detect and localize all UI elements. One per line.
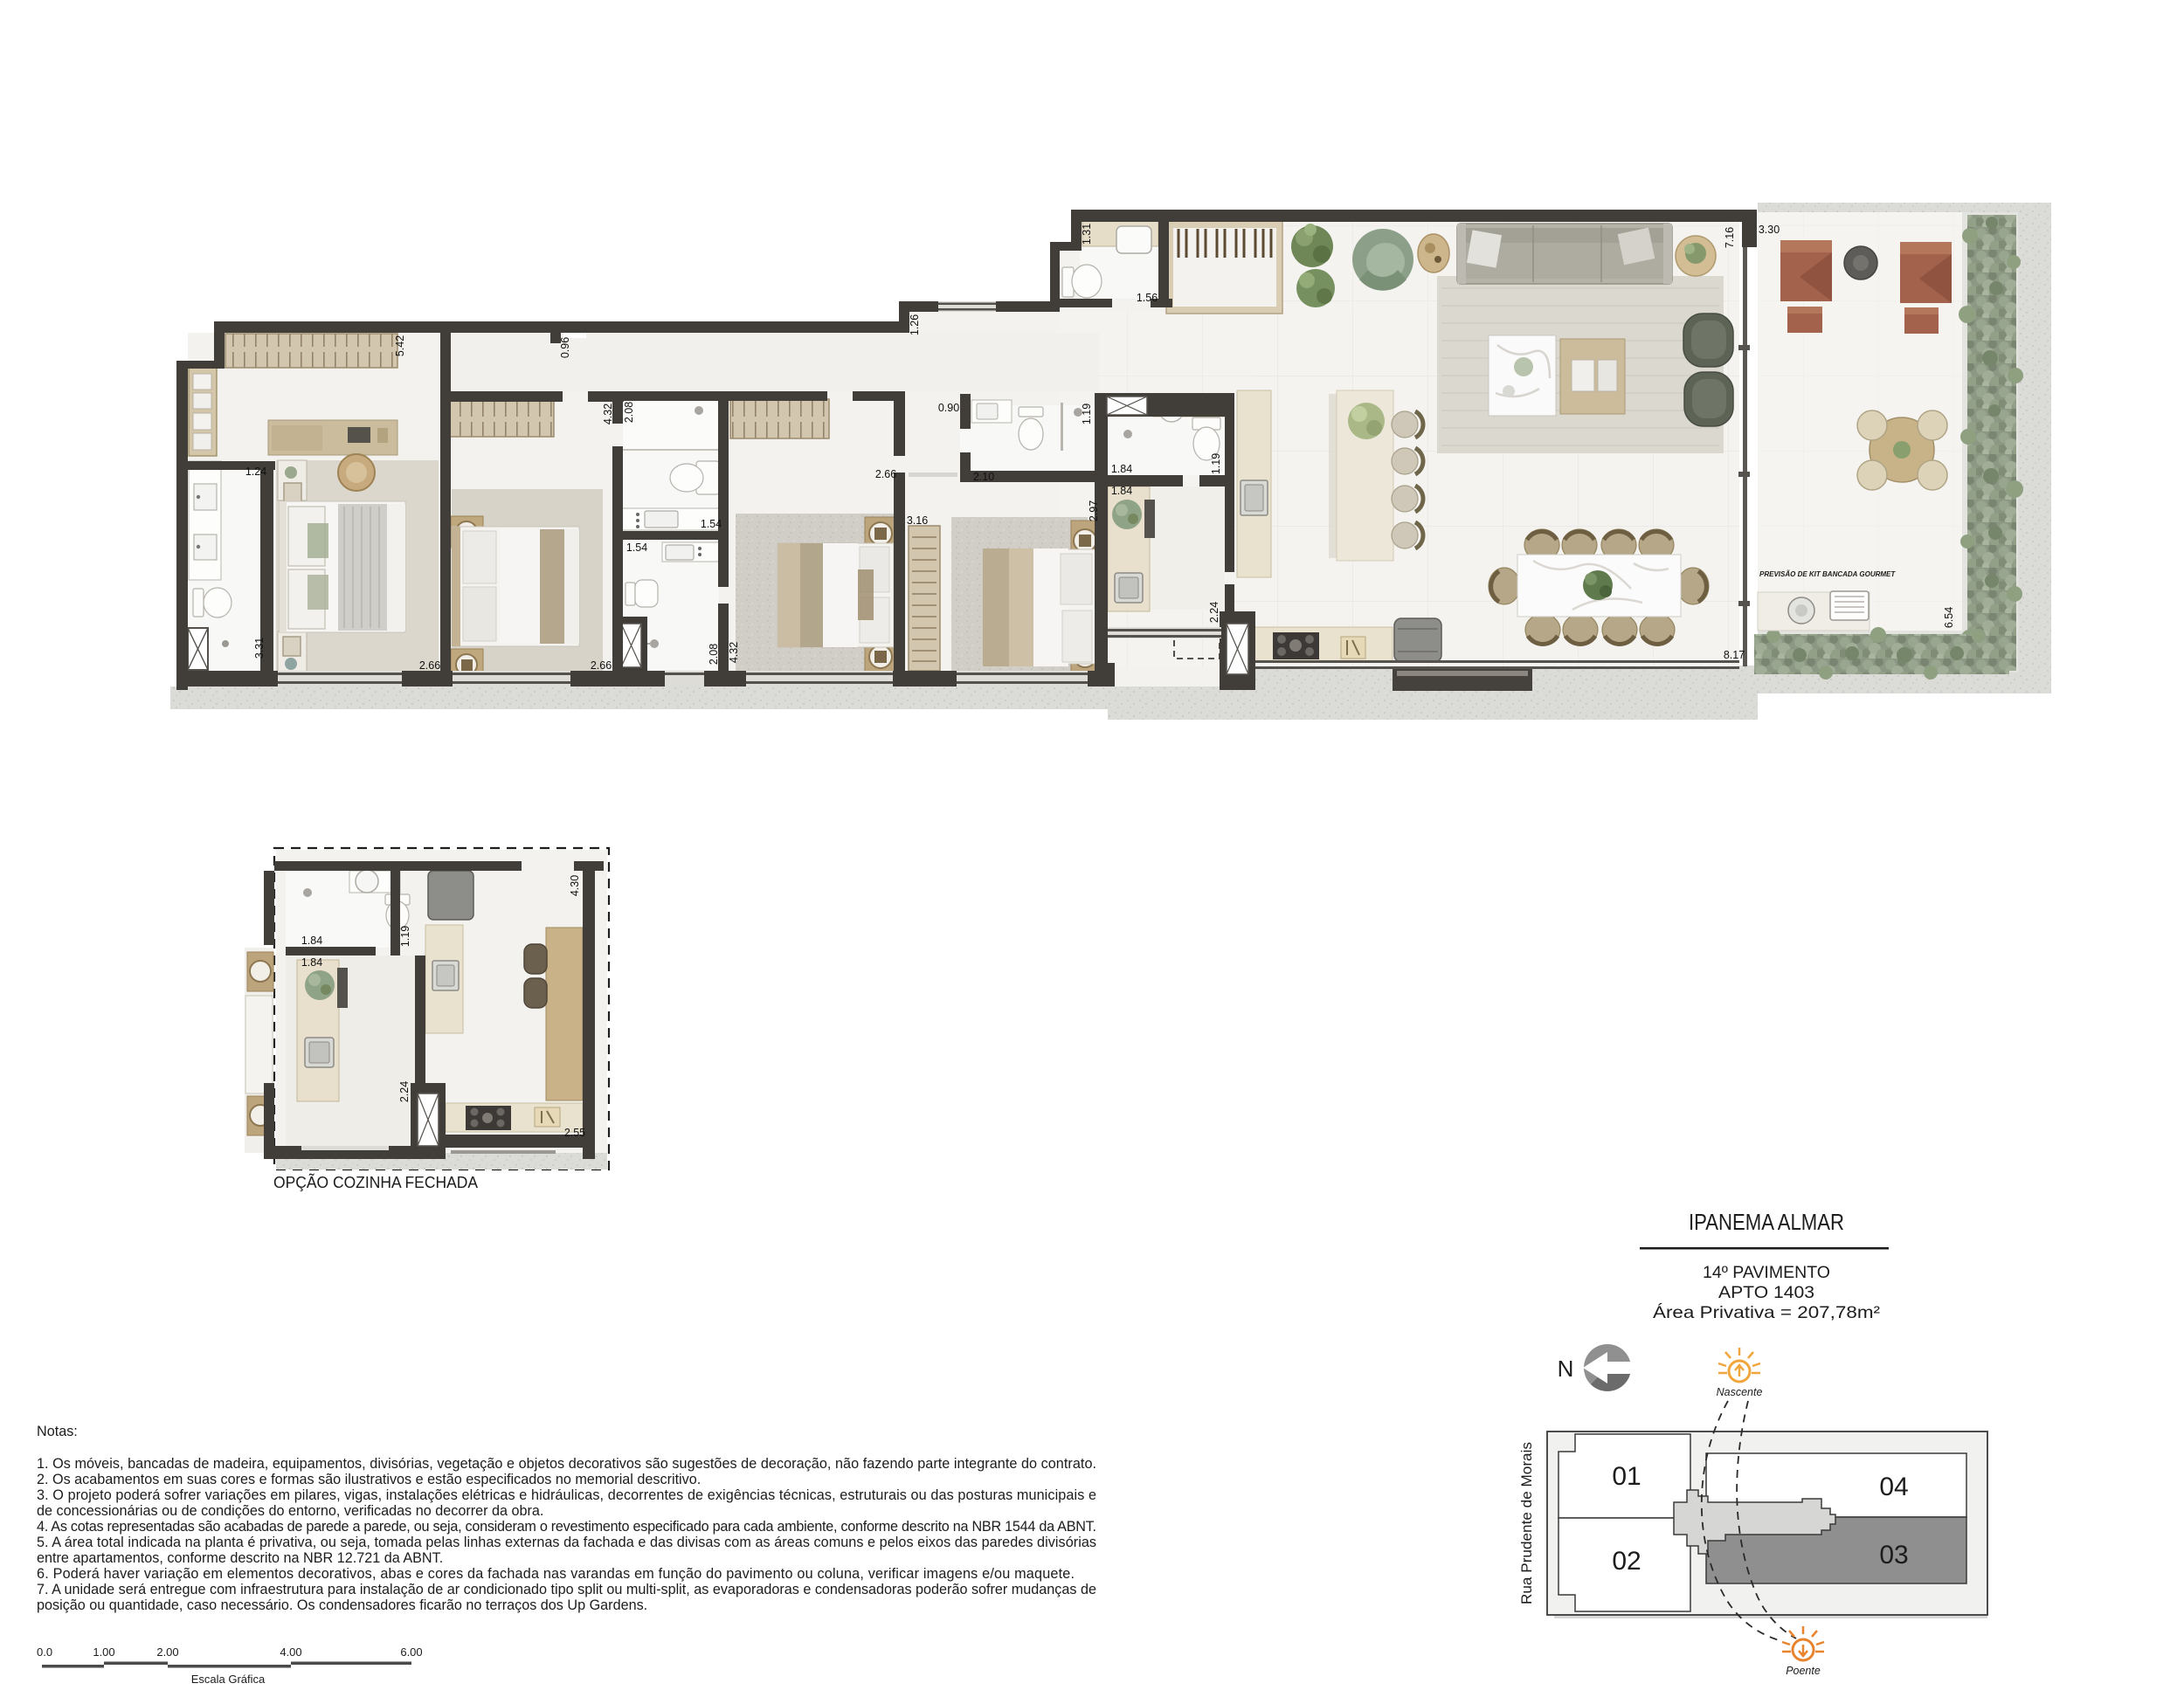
svg-text:posição ou quantidade, caso ne: posição ou quantidade, caso necessário. …: [37, 1597, 647, 1613]
svg-text:5.42: 5.42: [394, 335, 406, 356]
svg-text:N: N: [1558, 1356, 1574, 1382]
svg-text:1.84: 1.84: [1111, 485, 1132, 497]
svg-text:1.84: 1.84: [301, 956, 322, 969]
svg-text:4.00: 4.00: [280, 1645, 301, 1659]
svg-text:2.66: 2.66: [591, 659, 612, 672]
svg-text:1.31: 1.31: [1081, 224, 1093, 245]
svg-text:Nascente: Nascente: [1717, 1386, 1763, 1398]
svg-text:Notas:: Notas:: [37, 1424, 78, 1439]
svg-text:14º PAVIMENTO: 14º PAVIMENTO: [1703, 1263, 1830, 1282]
svg-text:Rua Prudente de Morais: Rua Prudente de Morais: [1518, 1442, 1535, 1604]
svg-text:0.96: 0.96: [559, 337, 571, 358]
svg-text:APTO 1403: APTO 1403: [1718, 1283, 1814, 1302]
svg-text:7.16: 7.16: [1724, 227, 1736, 248]
svg-text:3.16: 3.16: [907, 514, 928, 527]
svg-text:3. O projeto poderá sofrer var: 3. O projeto poderá sofrer variações em …: [37, 1487, 1096, 1503]
svg-text:2.08: 2.08: [623, 402, 635, 423]
svg-text:6. Poderá haver variação em el: 6. Poderá haver variação em elementos de…: [37, 1566, 1075, 1582]
svg-text:4.32: 4.32: [728, 642, 740, 663]
svg-text:1.19: 1.19: [1081, 404, 1093, 424]
svg-text:1.19: 1.19: [1210, 453, 1222, 474]
svg-text:1. Os móveis, bancadas de made: 1. Os móveis, bancadas de madeira, equip…: [37, 1456, 1096, 1472]
svg-text:4.32: 4.32: [602, 404, 614, 424]
svg-text:1.19: 1.19: [399, 926, 411, 947]
svg-text:8.17: 8.17: [1724, 649, 1745, 661]
svg-text:6.54: 6.54: [1943, 607, 1955, 628]
svg-text:3.30: 3.30: [1759, 224, 1780, 236]
svg-text:02: 02: [1612, 1547, 1641, 1576]
svg-text:4. As cotas representadas são: 4. As cotas representadas são acabadas d…: [37, 1519, 1096, 1535]
svg-text:1.84: 1.84: [1111, 463, 1132, 475]
svg-text:Escala Gráfica: Escala Gráfica: [191, 1673, 266, 1686]
svg-text:2.24: 2.24: [398, 1081, 411, 1102]
svg-text:4.30: 4.30: [569, 875, 581, 896]
svg-text:0.0: 0.0: [37, 1645, 52, 1659]
svg-text:IPANEMA ALMAR: IPANEMA ALMAR: [1689, 1209, 1844, 1235]
svg-text:PREVISÃO DE KIT BANCADA GOURME: PREVISÃO DE KIT BANCADA GOURMET: [1759, 570, 1896, 578]
svg-text:2.24: 2.24: [1208, 602, 1220, 623]
svg-text:04: 04: [1879, 1473, 1908, 1501]
svg-text:03: 03: [1879, 1541, 1908, 1569]
svg-text:0.90: 0.90: [938, 402, 959, 414]
svg-text:5. A área total indicada na pl: 5. A área total indicada na planta é pri…: [37, 1535, 1096, 1550]
svg-text:1.26: 1.26: [909, 314, 921, 335]
svg-text:OPÇÃO COZINHA FECHADA: OPÇÃO COZINHA FECHADA: [273, 1173, 479, 1191]
svg-text:01: 01: [1612, 1462, 1641, 1491]
svg-text:2.97: 2.97: [1088, 500, 1100, 521]
svg-text:6.00: 6.00: [400, 1645, 422, 1659]
svg-text:2.08: 2.08: [708, 644, 720, 665]
svg-text:2.66: 2.66: [419, 659, 440, 672]
svg-text:1.54: 1.54: [701, 518, 722, 530]
svg-text:Área Privativa = 207,78m²: Área Privativa = 207,78m²: [1653, 1302, 1881, 1322]
svg-text:Poente: Poente: [1786, 1665, 1821, 1677]
svg-text:3.31: 3.31: [253, 638, 266, 659]
svg-text:2.55: 2.55: [564, 1127, 585, 1139]
svg-text:2.00: 2.00: [156, 1645, 178, 1659]
svg-text:de concessionárias ou de condi: de concessionárias ou de condições do en…: [37, 1503, 543, 1519]
svg-text:1.00: 1.00: [93, 1645, 114, 1659]
svg-text:entre apartamentos, conforme d: entre apartamentos, conforme descrito na…: [37, 1550, 443, 1566]
svg-text:1.54: 1.54: [626, 542, 647, 554]
svg-text:2. Os acabamentos em suas core: 2. Os acabamentos em suas cores e formas…: [37, 1472, 701, 1487]
svg-text:1.24: 1.24: [245, 466, 266, 478]
svg-text:7. A unidade será entregue com: 7. A unidade será entregue com infraestr…: [37, 1582, 1096, 1597]
svg-text:2.10: 2.10: [973, 471, 994, 483]
svg-text:2.66: 2.66: [875, 468, 896, 480]
svg-text:1.56: 1.56: [1137, 292, 1158, 304]
svg-text:1.84: 1.84: [301, 935, 322, 947]
